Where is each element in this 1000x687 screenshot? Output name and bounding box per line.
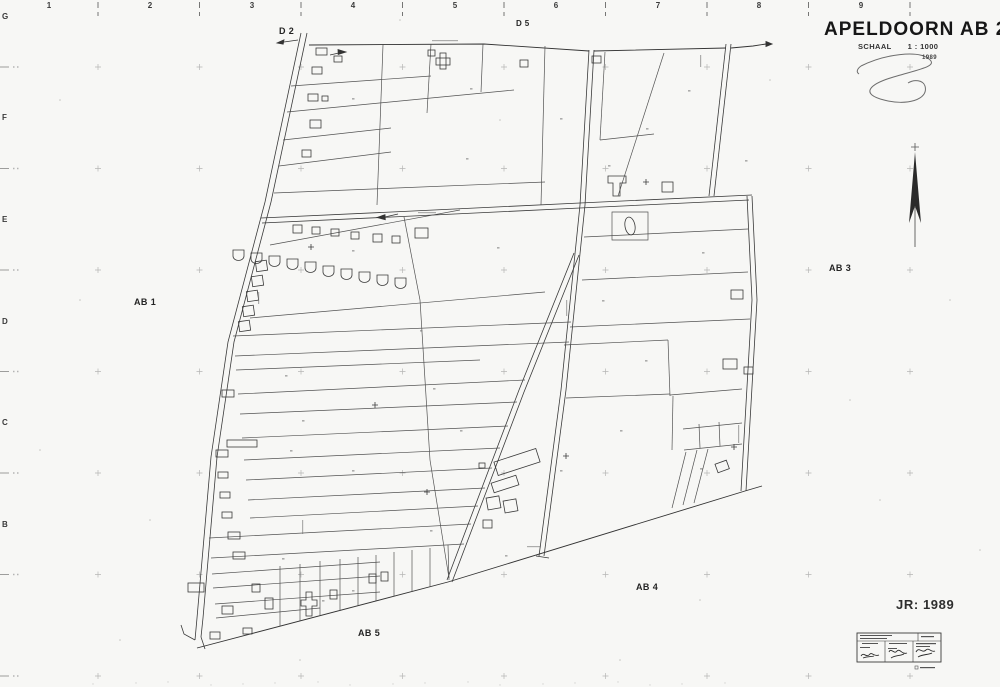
cadastral-map-drawing xyxy=(0,0,1000,687)
ruler-edge-marks xyxy=(0,67,19,676)
adjacent-sheet-label-ab4: AB 4 xyxy=(636,582,658,592)
scale-year: 1989 xyxy=(922,55,937,61)
scale-label: SCHAAL1 : 1000 xyxy=(858,42,938,51)
grid-letter: F xyxy=(2,113,7,122)
adjacent-sheet-label-d2: D 2 xyxy=(279,26,294,36)
sheet-title: APELDOORN AB 2 xyxy=(824,19,1000,41)
scale-value: 1 : 1000 xyxy=(908,42,939,51)
grid-number: 7 xyxy=(653,1,663,10)
grid-number: 9 xyxy=(856,1,866,10)
grid-number: 3 xyxy=(247,1,257,10)
scan-noise-dots xyxy=(39,19,981,686)
grid-cross-marks xyxy=(95,64,913,679)
grid-number: 6 xyxy=(551,1,561,10)
adjacent-sheet-label-d5: D 5 xyxy=(516,19,530,28)
map-sheet: 1 2 3 4 5 6 7 8 9 G F E D C B D 2 D 5 AB… xyxy=(0,0,1000,687)
grid-number: 1 xyxy=(44,1,54,10)
revision-year-label: JR: 1989 xyxy=(896,597,954,612)
approval-stamp xyxy=(857,633,941,669)
grid-letter: B xyxy=(2,520,8,529)
north-arrow-icon xyxy=(909,143,921,247)
road-lines xyxy=(181,33,757,649)
grid-letter: D xyxy=(2,317,8,326)
adjacent-sheet-label-ab3: AB 3 xyxy=(829,263,851,273)
scale-word: SCHAAL xyxy=(858,42,892,51)
ruler-tick-marks xyxy=(98,2,910,16)
grid-number: 5 xyxy=(450,1,460,10)
parcel-lines xyxy=(209,44,750,626)
grid-letter: C xyxy=(2,418,8,427)
grid-number: 2 xyxy=(145,1,155,10)
micro-text-marks xyxy=(258,40,748,602)
signature-flourish xyxy=(857,54,931,102)
grid-letter: G xyxy=(2,12,8,21)
adjacent-sheet-label-ab5: AB 5 xyxy=(358,628,380,638)
grid-number: 8 xyxy=(754,1,764,10)
adjacent-sheet-label-ab1: AB 1 xyxy=(134,297,156,307)
grid-letter: E xyxy=(2,215,7,224)
grid-number: 4 xyxy=(348,1,358,10)
map-boundary-lines xyxy=(197,42,772,649)
